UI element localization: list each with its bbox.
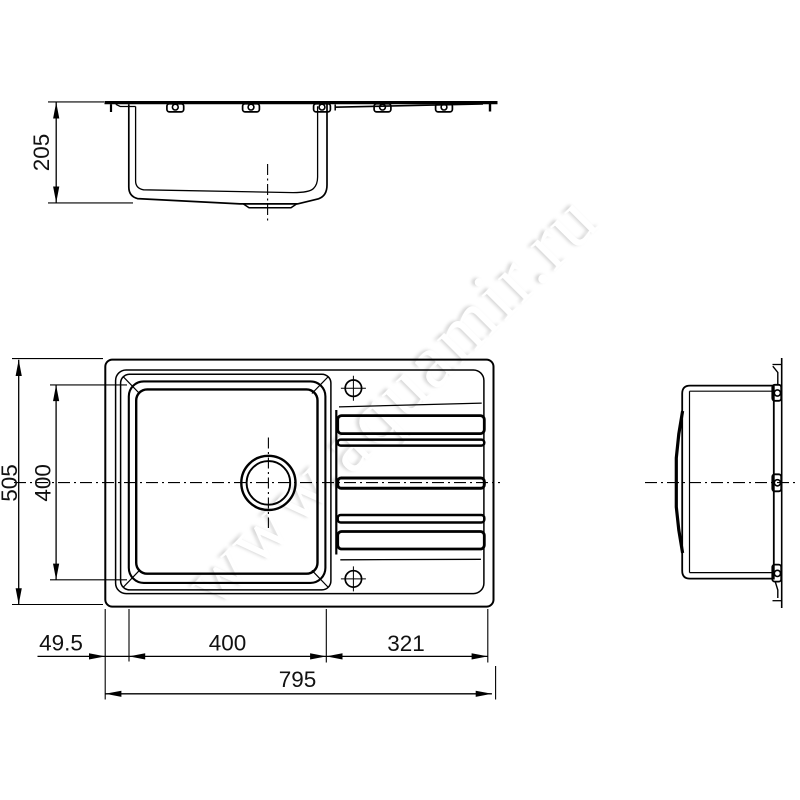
svg-text:505: 505	[0, 464, 22, 502]
svg-text:400: 400	[30, 464, 55, 502]
svg-text:321: 321	[387, 631, 425, 656]
svg-text:205: 205	[29, 134, 54, 172]
svg-text:795: 795	[279, 667, 317, 692]
svg-text:49.5: 49.5	[39, 631, 83, 656]
svg-text:400: 400	[209, 631, 247, 656]
